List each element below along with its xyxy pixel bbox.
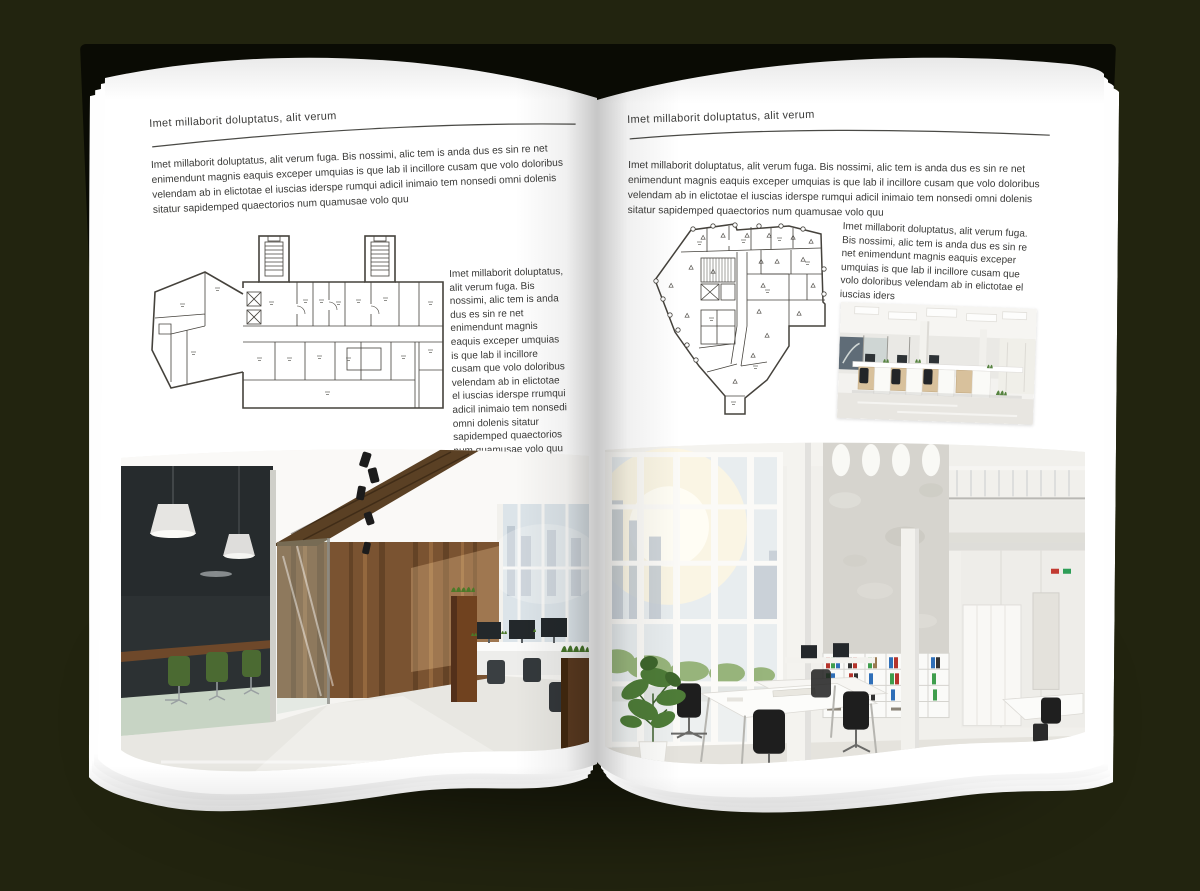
right-header-group: Imet millaborit doluptatus, alit verum I… — [627, 102, 1060, 218]
floor-plan-irregular — [641, 214, 841, 424]
magazine-spread-mockup: Imet millaborit doluptatus, alit verum I… — [0, 0, 1200, 891]
left-header-group: Imet millaborit doluptatus, alit verum I… — [149, 100, 587, 218]
side-paragraph: Imet millaborit doluptatus, alit verum f… — [449, 265, 572, 458]
intro-paragraph: Imet millaborit doluptatus, alit verum f… — [628, 158, 1059, 222]
intro-paragraph: Imet millaborit doluptatus, alit verum f… — [151, 140, 587, 218]
side-paragraph: Imet millaborit doluptatus, alit verum f… — [840, 220, 1041, 310]
photo-office-wood-glass — [121, 446, 589, 786]
photo-open-office-small — [837, 302, 1037, 425]
left-page: Imet millaborit doluptatus, alit verum I… — [85, 48, 597, 800]
floor-plan-wide — [147, 230, 451, 420]
right-page: Imet millaborit doluptatus, alit verum I… — [597, 52, 1115, 810]
photo-atrium-office — [605, 440, 1085, 792]
